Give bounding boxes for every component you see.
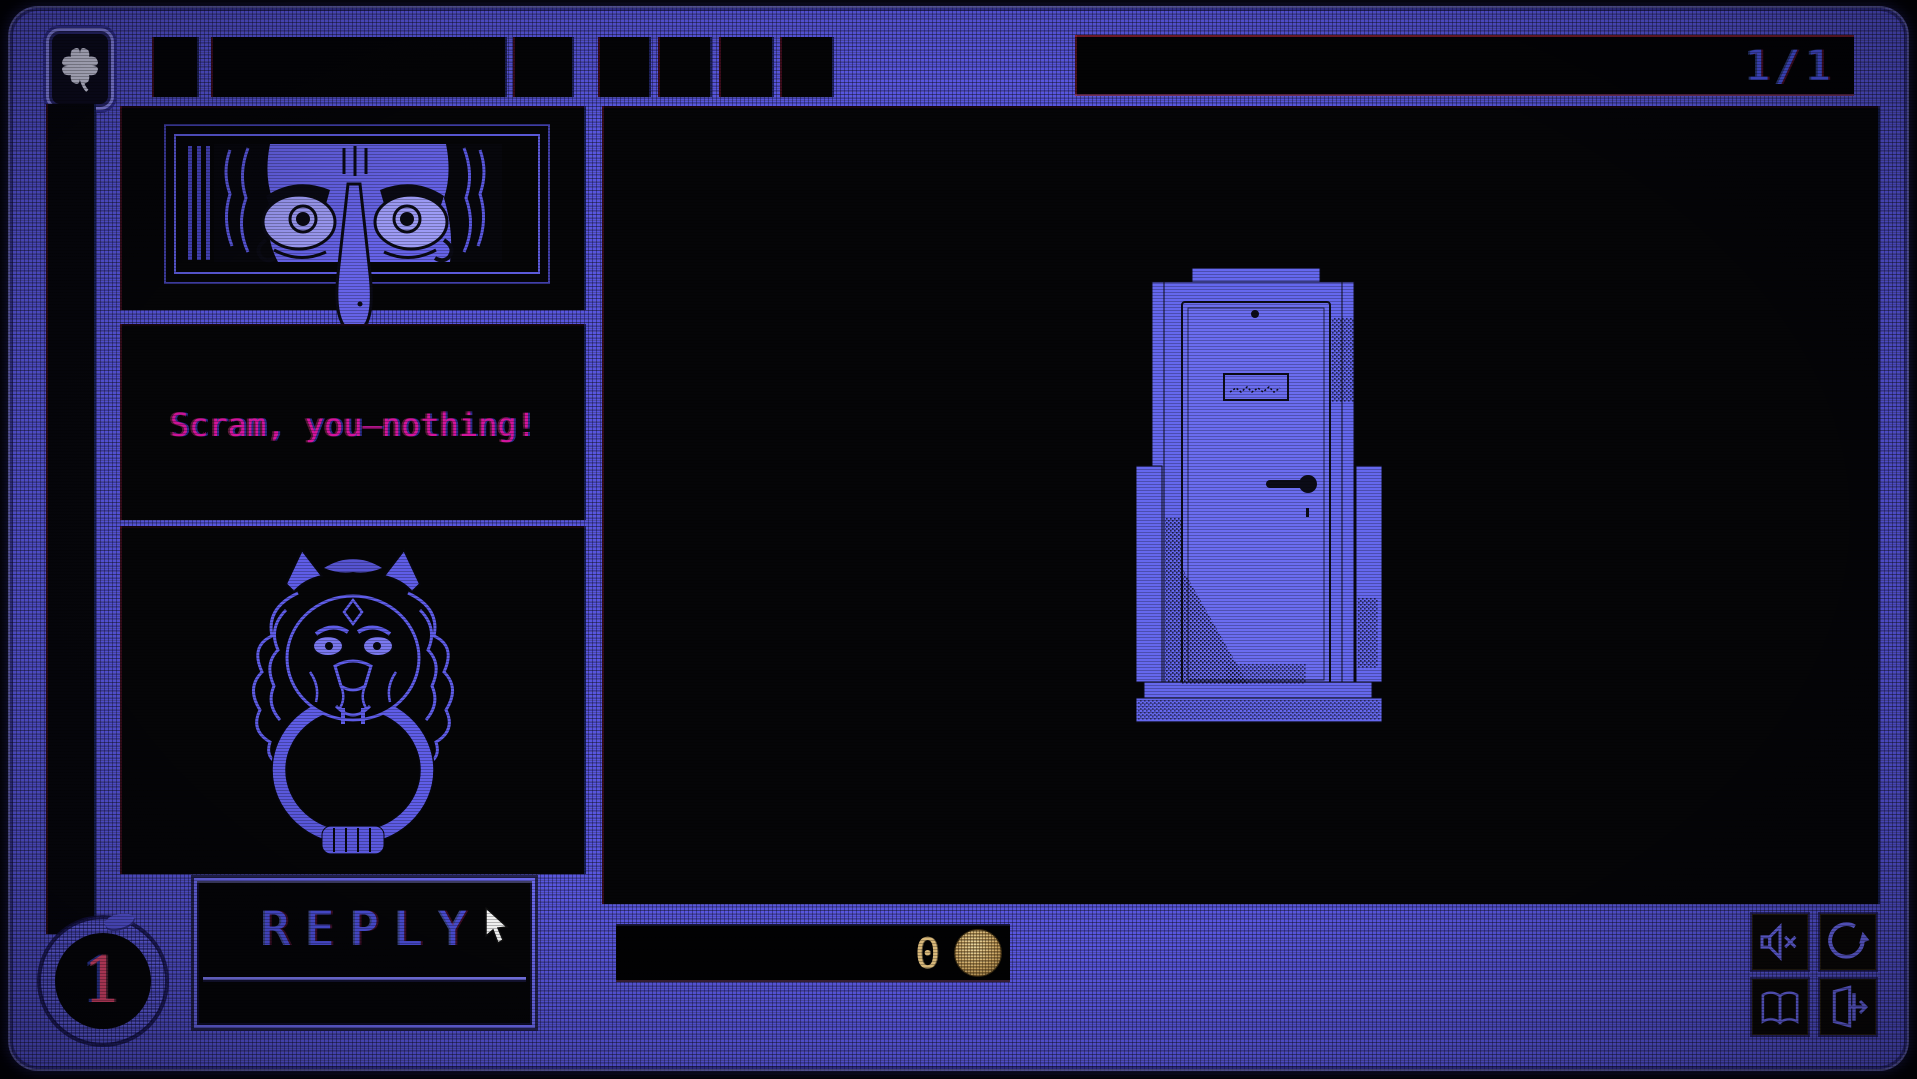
page-indicator-bar: 1/1	[1075, 35, 1854, 96]
journal-button[interactable]	[1752, 979, 1808, 1035]
item-slot[interactable]	[658, 37, 712, 97]
day-counter-ring: 1	[39, 917, 167, 1045]
message-panel: Scram, you—nothing!	[120, 324, 586, 520]
item-slot[interactable]	[152, 37, 199, 97]
visitor-message: Scram, you—nothing!	[170, 406, 536, 444]
four-leaf-clover-icon	[59, 43, 101, 95]
day-counter-value: 1	[83, 949, 124, 1013]
item-slot[interactable]	[719, 37, 774, 97]
reply-button[interactable]: REPLY	[194, 878, 535, 1028]
exit-door-icon	[1824, 983, 1872, 1031]
restart-button[interactable]	[1820, 914, 1876, 970]
mute-button[interactable]	[1752, 914, 1808, 970]
exit-button[interactable]	[1820, 979, 1876, 1035]
apartment-door[interactable]	[1136, 268, 1382, 730]
lion-knocker-icon[interactable]	[228, 538, 478, 860]
open-book-icon	[1756, 983, 1804, 1031]
scene-viewport	[602, 106, 1880, 904]
item-slot[interactable]	[598, 37, 651, 97]
item-slot[interactable]	[513, 37, 574, 97]
inventory-rail	[46, 104, 96, 934]
page-indicator: 1/1	[1745, 41, 1854, 90]
reply-label: REPLY	[197, 881, 532, 977]
peephole-eyes-icon	[174, 134, 536, 340]
game-window: 1/1	[0, 0, 1917, 1079]
peephole-panel	[120, 106, 586, 310]
snake-head-icon	[104, 911, 137, 934]
mouse-cursor	[485, 907, 511, 945]
item-slot-wide[interactable]	[211, 37, 507, 97]
clover-button[interactable]	[46, 28, 114, 110]
coin-amount: 0	[915, 929, 940, 978]
knocker-panel	[120, 526, 586, 874]
gold-coin-icon	[955, 930, 1001, 976]
item-slot[interactable]	[780, 37, 834, 97]
speaker-muted-icon	[1756, 918, 1804, 966]
window-frame: 1/1	[8, 6, 1909, 1071]
reply-empty-row	[197, 982, 532, 1016]
coin-counter-bar: 0	[616, 924, 1010, 982]
restart-arrow-icon	[1824, 918, 1872, 966]
